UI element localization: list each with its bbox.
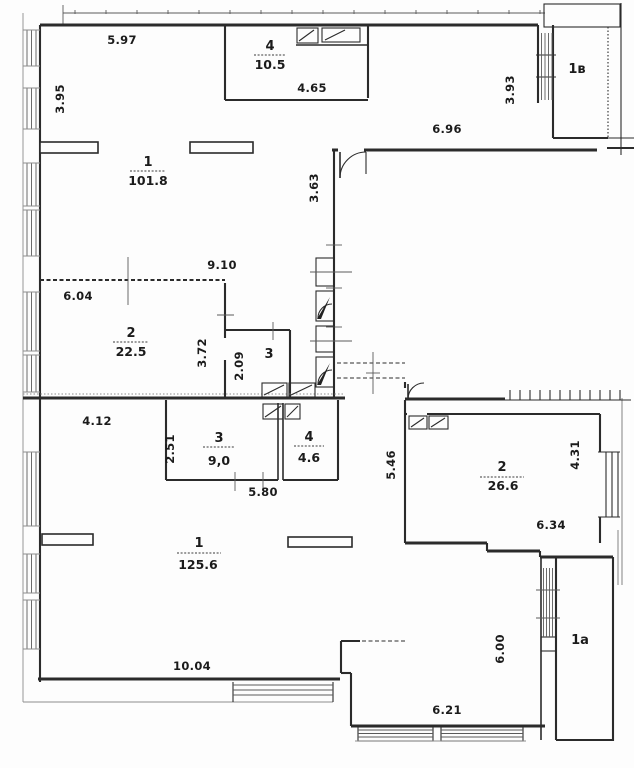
- dim-2-09: 2.09: [232, 351, 246, 381]
- vent-shaft-icon: [297, 28, 360, 43]
- stair-block-walls: [351, 382, 631, 741]
- dim-4-65: 4.65: [297, 81, 327, 95]
- vent-shaft-icon: [409, 416, 448, 429]
- window-icon: [598, 452, 620, 517]
- wall-stub: [40, 142, 98, 153]
- window-icon: [358, 727, 523, 741]
- room2-bot-number: 2: [497, 460, 506, 475]
- dim-9-10: 9.10: [207, 258, 237, 272]
- room1-top-number: 1: [143, 155, 152, 170]
- dim-3-72: 3.72: [195, 338, 209, 368]
- room3-bot-area: 9,0: [208, 453, 230, 468]
- room1-bot-area: 125.6: [178, 557, 218, 572]
- room2-top-area: 22.5: [116, 344, 147, 359]
- room3-top-number: 3: [264, 347, 273, 362]
- floor-plan-drawing: 5.97 3.95 4 10.5 4.65 3.93 1в 6.96 3.63 …: [0, 0, 634, 768]
- dim-6-34: 6.34: [536, 518, 566, 532]
- dim-3-63: 3.63: [307, 173, 321, 203]
- dim-5-46: 5.46: [384, 450, 398, 480]
- room2-top-number: 2: [126, 326, 135, 341]
- dim-10-04: 10.04: [173, 659, 211, 673]
- room4-bot-number: 4: [304, 430, 313, 445]
- room1-bot-number: 1: [194, 536, 203, 551]
- dim-3-95: 3.95: [53, 84, 67, 114]
- utility-shaft-icon: [310, 258, 352, 387]
- corridor-band: [337, 352, 405, 394]
- dim-4-31: 4.31: [568, 440, 582, 470]
- door-swing-icon: [340, 152, 366, 178]
- room3-bot-number: 3: [214, 431, 223, 446]
- dim-6-04: 6.04: [63, 289, 93, 303]
- dim-6-21: 6.21: [432, 703, 462, 717]
- dim-2-51: 2.51: [163, 434, 177, 464]
- wall-stub: [42, 534, 93, 545]
- dim-6-00: 6.00: [493, 634, 507, 664]
- door-leaf-icon: [262, 383, 315, 419]
- floor-plan-page: 5.97 3.95 4 10.5 4.65 3.93 1в 6.96 3.63 …: [0, 0, 634, 768]
- room4-top-area: 10.5: [255, 57, 286, 72]
- room2-bot-area: 26.6: [488, 478, 519, 493]
- wall-stub: [190, 142, 253, 153]
- room1-top-area: 101.8: [128, 173, 168, 188]
- duct-door-icon: [541, 637, 556, 651]
- dim-5-80: 5.80: [248, 485, 278, 499]
- dim-4-12: 4.12: [82, 414, 112, 428]
- dim-6-96: 6.96: [432, 122, 462, 136]
- dim-5-97: 5.97: [107, 33, 137, 47]
- room4-top-number: 4: [265, 39, 274, 54]
- room-1v-label: 1в: [568, 62, 585, 77]
- room-1a-label: 1a: [571, 633, 589, 648]
- wall-stub: [288, 537, 352, 547]
- room4-bot-area: 4.6: [298, 450, 320, 465]
- door-swing-icon: [408, 383, 424, 399]
- dim-3-93: 3.93: [503, 75, 517, 105]
